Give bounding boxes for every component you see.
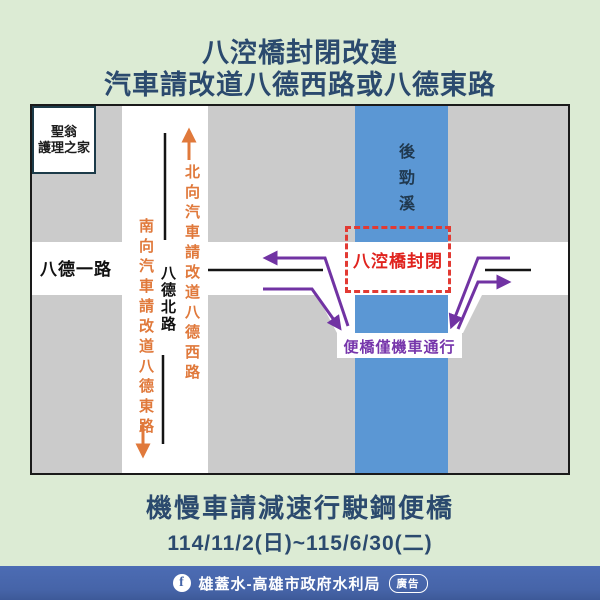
bridge-closure-label: 八涳橋封閉 <box>353 247 443 272</box>
map-overlay-graphics <box>32 106 568 473</box>
bridge-closure-dashed-box: 八涳橋封閉 <box>345 226 451 293</box>
detour-text-southbound: 南向汽車請改道八德東路 <box>135 218 156 438</box>
ad-badge: 廣告 <box>389 574 428 593</box>
road-label-bade-north: 八德北路 <box>157 265 178 333</box>
detour-map: 聖翁 護理之家 八德一路 八德北路 北向汽車請改道八德西路 南向汽車請改道八德東… <box>30 104 570 475</box>
bottom-notice-text: 機慢車請減速行駛鋼便橋 <box>0 488 600 525</box>
detour-text-northbound: 北向汽車請改道八德西路 <box>181 164 202 384</box>
footer-banner: f 雄蓋水-高雄市政府水利局 廣告 <box>0 566 600 600</box>
temp-bridge-ramp-west <box>317 295 355 333</box>
footer-brand-text: 雄蓋水-高雄市政府水利局 <box>199 573 381 594</box>
river-label: 後勁溪 <box>392 143 416 221</box>
temp-bridge-label: 便橋僅機車通行 <box>335 336 464 357</box>
closure-date-range: 114/11/2(日)~115/6/30(二) <box>0 527 600 557</box>
facebook-icon: f <box>173 574 191 592</box>
road-label-bade-1st: 八德一路 <box>40 255 112 280</box>
poster-title-line2: 汽車請改道八德西路或八德東路 <box>0 63 600 102</box>
